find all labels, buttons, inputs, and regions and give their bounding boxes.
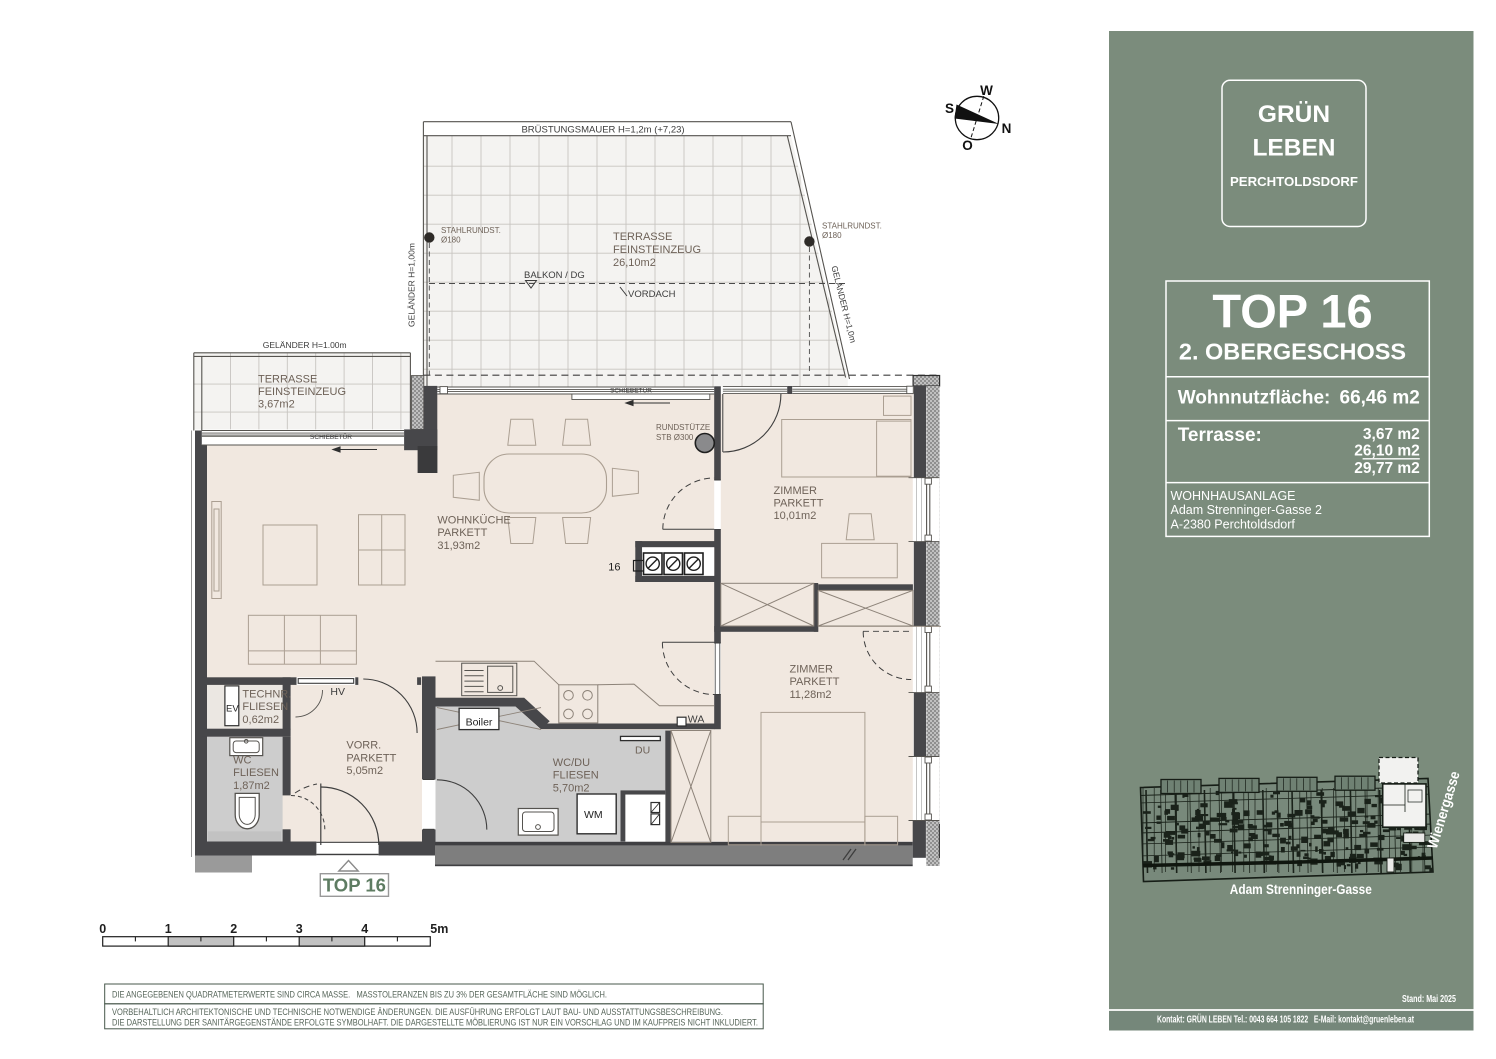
svg-text:GELÄNDER H=1,00m: GELÄNDER H=1,00m [407,243,417,327]
svg-text:EV: EV [226,704,239,715]
svg-text:DU: DU [635,745,650,757]
svg-text:SCHIEBETÜR: SCHIEBETÜR [610,386,652,394]
svg-text:Kontakt: GRÜN LEBEN Tel.: 0043: Kontakt: GRÜN LEBEN Tel.: 0043 664 105 1… [1157,1012,1414,1025]
svg-text:ZIMMER: ZIMMER [774,485,817,497]
svg-text:TOP 16: TOP 16 [323,874,386,895]
svg-text:TERRASSE: TERRASSE [613,231,672,243]
svg-text:Terrasse:: Terrasse: [1178,425,1262,446]
svg-text:A-2380 Perchtoldsdorf: A-2380 Perchtoldsdorf [1171,518,1296,532]
svg-text:PARKETT: PARKETT [790,676,840,688]
svg-text:VORBEHALTLICH ARCHITEKTONISCHE: VORBEHALTLICH ARCHITEKTONISCHE UND TECHN… [112,1007,723,1017]
svg-text:WA: WA [688,714,705,726]
svg-text:PARKETT: PARKETT [437,527,487,539]
svg-text:1,87m2: 1,87m2 [233,780,270,792]
svg-text:0: 0 [99,922,106,936]
svg-text:Adam Strenninger-Gasse 2: Adam Strenninger-Gasse 2 [1171,503,1323,517]
svg-text:O: O [962,138,973,153]
svg-text:PERCHTOLDSDORF: PERCHTOLDSDORF [1230,174,1358,189]
svg-text:WOHNKÜCHE: WOHNKÜCHE [437,515,510,527]
svg-text:GELÄNDER H=1.00m: GELÄNDER H=1.00m [263,340,347,350]
svg-text:5,05m2: 5,05m2 [346,765,383,777]
svg-text:WOHNHAUSANLAGE: WOHNHAUSANLAGE [1171,489,1296,503]
svg-text:TOP 16: TOP 16 [1212,285,1372,338]
svg-text:FLIESEN: FLIESEN [233,767,279,779]
svg-text:VORR.: VORR. [346,740,381,752]
svg-text:HV: HV [330,686,345,698]
svg-text:STAHLRUNDST.: STAHLRUNDST. [822,222,882,231]
svg-text:LEBEN: LEBEN [1252,135,1335,162]
svg-text:31,93m2: 31,93m2 [437,540,480,552]
svg-text:26,10m2: 26,10m2 [613,257,656,269]
svg-text:11,28m2: 11,28m2 [790,689,832,701]
svg-text:Adam Strenninger-Gasse: Adam Strenninger-Gasse [1230,882,1372,897]
svg-text:DIE DARSTELLUNG DER SANITÄRGEG: DIE DARSTELLUNG DER SANITÄRGEGENSTÄNDE E… [112,1017,758,1027]
svg-text:16: 16 [608,562,620,574]
svg-text:29,77 m2: 29,77 m2 [1354,460,1420,477]
svg-text:N: N [1002,121,1012,136]
svg-text:STAHLRUNDST.: STAHLRUNDST. [441,226,501,235]
svg-text:0,62m2: 0,62m2 [242,714,279,726]
svg-text:FEINSTEINZEUG: FEINSTEINZEUG [258,386,346,398]
svg-text:Ø180: Ø180 [822,231,842,240]
svg-text:5m: 5m [430,922,448,936]
svg-text:W: W [980,83,993,98]
svg-text:3,67 m2: 3,67 m2 [1363,426,1420,443]
svg-text:PARKETT: PARKETT [346,752,396,764]
svg-text:2. OBERGESCHOSS: 2. OBERGESCHOSS [1179,339,1406,365]
svg-text:66,46 m2: 66,46 m2 [1340,388,1420,409]
svg-text:3: 3 [296,922,303,936]
svg-text:WM: WM [584,809,603,821]
svg-text:FLIESEN: FLIESEN [553,770,599,782]
svg-text:FEINSTEINZEUG: FEINSTEINZEUG [613,244,701,256]
svg-text:DIE ANGEGEBENEN QUADRATMETERWE: DIE ANGEGEBENEN QUADRATMETERWERTE SIND C… [112,990,607,1000]
svg-text:S: S [945,101,954,116]
svg-text:SCHIEBETÜR: SCHIEBETÜR [310,433,352,441]
svg-text:GRÜN: GRÜN [1258,101,1330,128]
svg-text:Wohnnutzfläche:: Wohnnutzfläche: [1178,388,1331,409]
svg-text:10,01m2: 10,01m2 [774,510,817,522]
svg-text:WC/DU: WC/DU [553,757,590,769]
svg-text:Ø180: Ø180 [441,236,461,245]
svg-text:26,10 m2: 26,10 m2 [1354,443,1420,460]
svg-text:BALKON / DG: BALKON / DG [524,270,585,281]
svg-text:3,67m2: 3,67m2 [258,399,295,411]
svg-text:Boiler: Boiler [466,716,493,728]
svg-text:RUNDSTÜTZE: RUNDSTÜTZE [656,423,710,432]
svg-text:WC: WC [233,755,251,767]
svg-text:STB Ø300: STB Ø300 [656,433,694,442]
svg-text:FLIESEN: FLIESEN [242,701,288,713]
svg-text:VORDACH: VORDACH [628,289,676,300]
svg-text:4: 4 [361,922,368,936]
svg-text:Stand: Mai 2025: Stand: Mai 2025 [1402,993,1456,1005]
svg-text:5,70m2: 5,70m2 [553,782,590,794]
svg-text:2: 2 [230,922,237,936]
svg-text:PARKETT: PARKETT [774,498,824,510]
svg-text:TERRASSE: TERRASSE [258,373,317,385]
svg-text:BRÜSTUNGSMAUER H=1,2m (+7,23): BRÜSTUNGSMAUER H=1,2m (+7,23) [521,125,684,136]
svg-text:TECHNR.: TECHNR. [242,689,291,701]
svg-text:1: 1 [165,922,172,936]
svg-text:ZIMMER: ZIMMER [790,664,833,676]
